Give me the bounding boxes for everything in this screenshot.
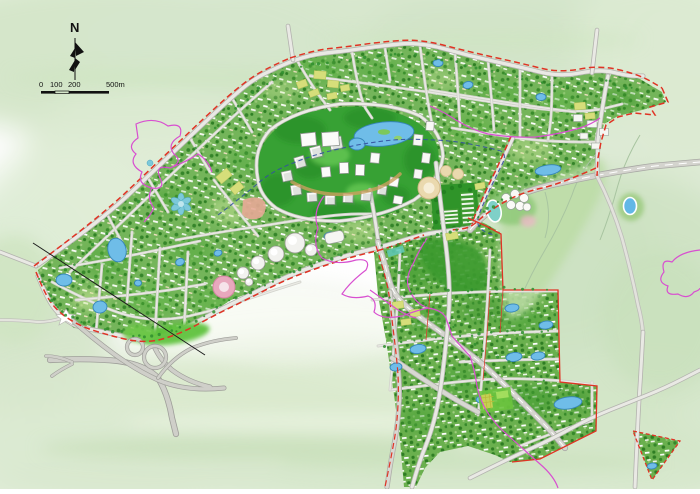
svg-text:500m: 500m bbox=[106, 80, 125, 89]
svg-text:0: 0 bbox=[39, 80, 43, 89]
svg-text:200: 200 bbox=[68, 80, 81, 89]
svg-text:N: N bbox=[70, 20, 79, 35]
svg-text:100: 100 bbox=[50, 80, 63, 89]
